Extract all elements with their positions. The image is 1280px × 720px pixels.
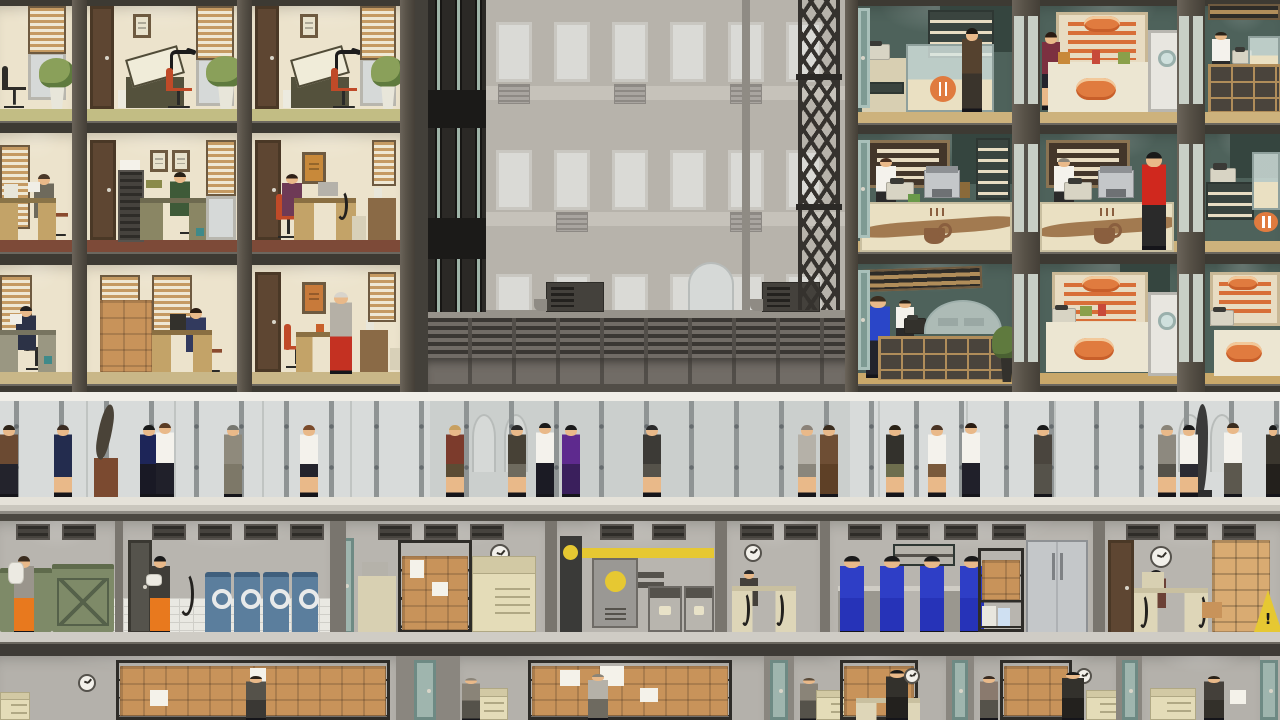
office-door[interactable]: [90, 6, 114, 109]
recycle-bin[interactable]: [205, 572, 231, 632]
sandwich-logo: [1082, 276, 1120, 292]
fire-escape-platform: [796, 204, 842, 210]
ceiling-vent: [896, 524, 930, 540]
sandwich-logo: [1084, 16, 1120, 32]
background-window: [496, 22, 532, 82]
basement1-floor: [0, 632, 1280, 642]
background-window: [670, 150, 706, 210]
mail-clerk[interactable]: [980, 676, 998, 720]
office-chair: [331, 66, 357, 108]
divider-doors[interactable]: [1014, 144, 1038, 232]
wall-arch-detail: [472, 414, 496, 472]
skybridge-floor: [0, 497, 1280, 505]
ceiling-vent: [1222, 524, 1256, 540]
window-blinds: [372, 140, 396, 186]
cash-register[interactable]: [1064, 182, 1092, 200]
glass-mullion: [689, 401, 694, 498]
mail-clerk[interactable]: [1062, 672, 1084, 720]
mechanical-vent-band: [428, 318, 848, 358]
ceiling-vent: [470, 524, 504, 540]
ceiling-vent: [848, 524, 882, 540]
background-window: [612, 150, 648, 210]
floor-slab: [0, 252, 428, 265]
water-jug: [982, 606, 996, 626]
warehouse-worker[interactable]: [462, 678, 480, 720]
generator-unit[interactable]: [684, 586, 714, 632]
pedestrian[interactable]: [562, 425, 580, 497]
hazard-stripe: [582, 548, 714, 558]
office-floor-strip: [0, 109, 428, 121]
cash-register[interactable]: [904, 318, 926, 334]
supply-cabinet: [358, 576, 396, 632]
paper-stack: [432, 582, 448, 596]
office-floor-strip: [0, 240, 428, 252]
divider-doors[interactable]: [1014, 274, 1038, 362]
utility-door[interactable]: [1122, 660, 1138, 720]
structural-column: [400, 0, 415, 392]
glass-mullion: [1139, 401, 1144, 498]
fax-machine: [362, 562, 388, 576]
drink-cup: [1092, 50, 1100, 64]
ceiling-vent: [62, 524, 96, 540]
structural-column: [237, 0, 252, 392]
box-stack: [100, 300, 152, 372]
cardboard-box: [1202, 602, 1222, 618]
food-item: [1080, 306, 1092, 316]
pedestrian[interactable]: [1034, 425, 1052, 497]
side-cabinet: [368, 198, 396, 240]
recycle-bin[interactable]: [263, 572, 289, 632]
ceiling-vent: [600, 524, 634, 540]
espresso-machine[interactable]: [1098, 170, 1134, 198]
coffee-mug: [316, 324, 324, 332]
ceiling-vent: [944, 524, 978, 540]
office-door[interactable]: [255, 272, 281, 372]
pedestrian[interactable]: [928, 425, 946, 497]
cafe-edge-column: [845, 0, 858, 392]
background-window: [554, 150, 590, 210]
paper-stack: [640, 688, 658, 702]
newspaper: [10, 314, 22, 324]
coffee-jar: [960, 182, 970, 198]
cleaning-hose: [178, 572, 194, 616]
glass-mullion: [779, 401, 784, 498]
pedestrian[interactable]: [54, 425, 72, 497]
coffee-mug: [44, 356, 52, 364]
pedestrian[interactable]: [643, 425, 661, 497]
window-ac-unit: [614, 84, 646, 104]
glass-mullion: [1094, 401, 1099, 498]
large-copier[interactable]: [472, 556, 536, 632]
machine-hose: [336, 190, 348, 220]
waste-basket: [352, 216, 366, 240]
office-door[interactable]: [1108, 540, 1134, 636]
pedestrian[interactable]: [1266, 425, 1280, 497]
fire-escape-truss: [798, 0, 840, 310]
divider-wall: [330, 521, 346, 642]
pedestrian[interactable]: [962, 423, 980, 497]
divider-doors[interactable]: [1179, 274, 1203, 362]
pedestrian[interactable]: [446, 425, 464, 497]
pedestrian[interactable]: [820, 425, 838, 497]
certificate-frame: [300, 14, 318, 38]
utility-door[interactable]: [770, 660, 788, 720]
paper-stack: [560, 670, 580, 686]
tower-edge: [415, 0, 428, 392]
office-desk: [152, 330, 212, 372]
ceiling-vent: [198, 524, 232, 540]
computer-monitor: [4, 184, 18, 198]
glass-mullion: [914, 401, 919, 498]
condiment-shelf: [866, 82, 904, 94]
espresso-machine[interactable]: [924, 170, 960, 198]
glass-mullion: [599, 401, 604, 498]
wall-clock: [904, 668, 920, 684]
copier[interactable]: [0, 692, 30, 720]
window-blinds: [196, 6, 234, 60]
ceiling-vent: [652, 524, 686, 540]
office-floor-strip: [0, 372, 428, 384]
potted-palm: [44, 62, 70, 109]
warehouse-worker[interactable]: [588, 674, 608, 720]
service-door[interactable]: [128, 540, 152, 634]
divider-doors[interactable]: [1179, 16, 1203, 104]
floor-slab: [0, 121, 428, 133]
utility-door[interactable]: [1260, 660, 1278, 720]
sandwich-logo: [1076, 78, 1116, 100]
pedestrian[interactable]: [886, 425, 904, 497]
window-ac-unit: [498, 84, 530, 104]
drainpipe: [742, 0, 750, 316]
green-dumpster[interactable]: [52, 564, 114, 632]
side-cabinet: [360, 330, 388, 372]
ceiling-vent: [1126, 524, 1160, 540]
hanging-menu-sign: [1208, 4, 1280, 20]
divider-wall: [545, 521, 557, 642]
cafe-glass-door[interactable]: [858, 140, 870, 238]
maintenance-worker[interactable]: [880, 556, 904, 634]
maintenance-worker[interactable]: [840, 556, 864, 634]
rooftop-hvac-unit: [546, 282, 604, 312]
window-ac-unit: [556, 212, 588, 232]
window-blinds: [28, 6, 66, 54]
janitor[interactable]: [150, 556, 170, 634]
basement-slab: [0, 642, 1280, 656]
glass-mullion: [869, 401, 874, 498]
kitchen-door[interactable]: [1148, 292, 1180, 376]
breaker-cabinet[interactable]: [592, 558, 638, 628]
cafe-glass-door[interactable]: [858, 8, 870, 108]
floor-slab: [845, 252, 1280, 264]
office-desk: [0, 330, 56, 372]
landscape-picture: [302, 152, 326, 184]
double-door-fridge[interactable]: [1026, 540, 1088, 634]
computer-monitor: [170, 314, 186, 330]
certificate-frame: [150, 150, 168, 172]
ceiling-vent: [784, 524, 818, 540]
newspaper: [146, 574, 162, 586]
window-blinds: [368, 272, 396, 322]
bottle: [374, 188, 382, 198]
desk-machine: [318, 182, 338, 196]
glass-mullion: [554, 401, 559, 498]
skybridge-fascia: [0, 392, 1280, 401]
food-item: [1118, 52, 1130, 64]
copier[interactable]: [1150, 688, 1196, 720]
divider-wall: [820, 521, 830, 642]
ceiling-vent: [16, 524, 50, 540]
paper-stack: [410, 560, 424, 578]
maintenance-painter[interactable]: [330, 292, 352, 374]
glass-mullion: [734, 401, 739, 498]
fork-knife-logo: [930, 76, 956, 102]
divider-wall: [1093, 521, 1105, 642]
pedestrian[interactable]: [798, 425, 816, 497]
ceiling-vent: [378, 524, 412, 540]
background-window: [612, 22, 648, 82]
game-viewport[interactable]: [0, 0, 1280, 720]
pedestrian[interactable]: [508, 425, 526, 497]
sandwich-logo: [1226, 342, 1262, 362]
drink-cup: [1098, 304, 1106, 316]
elevator-shaft-facade: [428, 0, 486, 312]
crate-counter: [878, 336, 1010, 380]
paper-stack: [1230, 690, 1246, 704]
conduit: [638, 572, 664, 578]
phone-cord: [1138, 594, 1148, 628]
office-door[interactable]: [90, 140, 116, 240]
sandwich-logo: [1228, 276, 1258, 290]
divider-doors[interactable]: [1014, 16, 1038, 104]
glass-mullion: [464, 401, 469, 498]
waste-basket: [390, 348, 400, 370]
glass-mullion: [419, 401, 424, 498]
kitchen-door[interactable]: [1148, 30, 1180, 112]
phone-cord: [740, 592, 750, 626]
paper-stack: [120, 160, 140, 170]
steam-lines: [930, 208, 944, 216]
maintenance-worker[interactable]: [920, 556, 944, 634]
coffee-cup-logo: [1092, 216, 1122, 244]
ceiling-vent: [424, 524, 458, 540]
phone-cord: [774, 592, 784, 626]
potted-palm: [212, 60, 240, 109]
window-blinds: [206, 140, 236, 196]
chef-red-apron[interactable]: [1142, 152, 1166, 250]
pedestrian[interactable]: [536, 423, 554, 497]
background-window: [496, 150, 532, 210]
wall-clock: [744, 544, 762, 562]
mechanical-shadow: [428, 384, 848, 392]
newspaper: [28, 182, 40, 192]
ceiling-vent: [290, 524, 324, 540]
hanging-menu-sign: [858, 266, 983, 292]
divider-wall: [715, 521, 727, 642]
glass-mullion: [329, 401, 334, 498]
office-door[interactable]: [255, 6, 279, 109]
office-chair: [166, 66, 192, 108]
seafood-platter: [938, 318, 958, 326]
background-window: [554, 22, 590, 82]
food-item: [1058, 52, 1070, 64]
pedestrian[interactable]: [0, 425, 18, 497]
pedestrian[interactable]: [1224, 423, 1242, 497]
certificate-frame: [172, 150, 190, 172]
ceiling-vent: [152, 524, 186, 540]
ceiling-vent: [992, 524, 1026, 540]
utility-door[interactable]: [414, 660, 436, 720]
facade-belt-course: [428, 212, 848, 226]
sculpture-pedestal: [94, 458, 118, 498]
fire-escape-platform: [796, 74, 842, 80]
deli-counter: [1208, 64, 1280, 112]
ceiling-vent: [1174, 524, 1208, 540]
coffee-mug: [196, 228, 204, 236]
pedestrian[interactable]: [224, 425, 242, 497]
window-blinds: [360, 6, 396, 60]
recycle-bin[interactable]: [292, 572, 318, 632]
steam-lines: [1100, 208, 1114, 216]
drinks-fridge: [1206, 182, 1254, 220]
banker-lamp: [146, 180, 162, 188]
warehouse-worker[interactable]: [246, 676, 266, 720]
sandwich-logo: [1074, 338, 1114, 360]
office-window: [206, 196, 236, 240]
office-desk: [0, 198, 56, 240]
background-window: [670, 22, 706, 82]
mechanical-panel-band: [428, 358, 848, 386]
lightning-badge: [563, 545, 578, 560]
certificate-frame: [133, 14, 151, 38]
trash-bag: [8, 562, 24, 584]
floor-slab: [845, 384, 1280, 392]
paper-stack: [150, 690, 168, 706]
landscape-picture: [302, 282, 326, 314]
seafood-platter: [964, 318, 984, 326]
pedestrian[interactable]: [1158, 425, 1176, 497]
wall-clock: [1150, 546, 1172, 568]
bakery-logo: [1254, 212, 1278, 232]
utility-door[interactable]: [952, 660, 968, 720]
syrup-bottle-rack: [976, 138, 1010, 200]
office-chair: [2, 64, 26, 108]
potted-palm: [376, 60, 400, 109]
pedestrian[interactable]: [1180, 425, 1198, 497]
stored-boxes: [1004, 666, 1068, 716]
glass-mullion: [374, 401, 379, 498]
cafe-glass-door[interactable]: [858, 270, 870, 370]
ceiling-vent: [740, 524, 774, 540]
copy-clerk[interactable]: [1204, 676, 1224, 720]
ceiling-vent: [244, 524, 278, 540]
wall-clock: [78, 674, 96, 692]
divider-doors[interactable]: [1179, 144, 1203, 232]
glass-mullion: [284, 401, 289, 498]
glass-mullion: [194, 401, 199, 498]
generator-unit[interactable]: [648, 586, 682, 632]
coffee-cup-logo: [922, 216, 952, 244]
pedestrian[interactable]: [300, 425, 318, 497]
ground-band: [0, 514, 1280, 521]
glass-mullion: [1004, 401, 1009, 498]
water-jug: [998, 608, 1010, 626]
cash-register[interactable]: [1210, 310, 1234, 326]
recycle-bin[interactable]: [234, 572, 260, 632]
pedestrian[interactable]: [156, 423, 174, 497]
cafe-customer[interactable]: [962, 28, 982, 112]
floor-slab: [845, 123, 1280, 134]
cafe-floor-strip: [845, 112, 1280, 123]
structural-column: [72, 0, 87, 392]
divider-wall: [115, 521, 123, 642]
bakery-display-case[interactable]: [1252, 152, 1280, 210]
floor-slab: [0, 384, 428, 392]
supply-boxes: [982, 560, 1020, 600]
